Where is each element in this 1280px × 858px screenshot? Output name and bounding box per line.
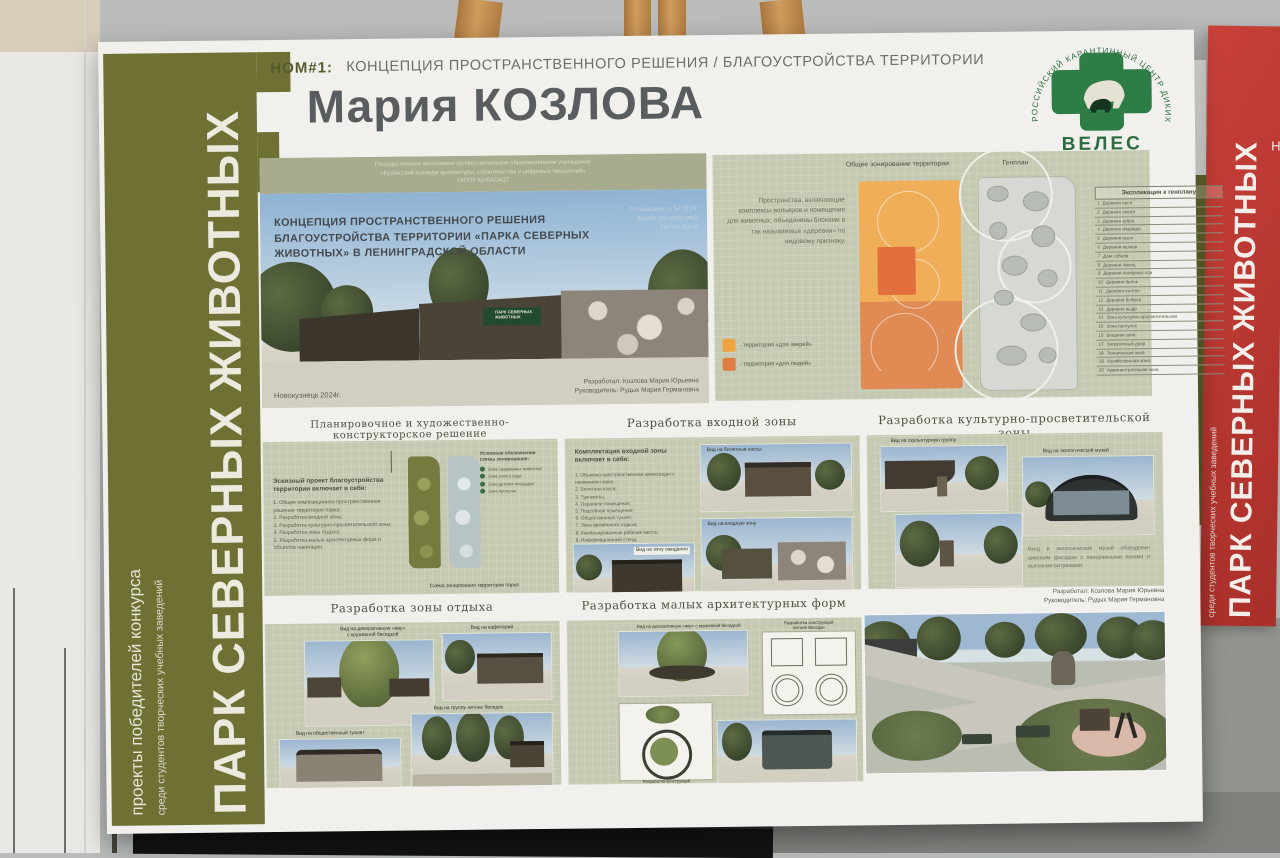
row-number: 8 bbox=[1098, 261, 1101, 269]
row-number: 16 bbox=[1098, 332, 1103, 340]
scheme-legend-row: Зона тихого сада bbox=[480, 473, 552, 479]
explication-rows: 1 Деревня лося 2 Деревня оленя 3 Деревня… bbox=[1095, 198, 1225, 375]
legend-row: - территория «для людей» bbox=[723, 356, 853, 370]
row-label: Дом соболя bbox=[1103, 252, 1128, 260]
row-number: 5 bbox=[1097, 235, 1100, 243]
render-sculpture-2 bbox=[895, 514, 1022, 587]
zoning-description: Пространства, включающие комплексы волье… bbox=[727, 196, 846, 248]
legend-swatch bbox=[723, 358, 736, 371]
planning-list-item: 1. Общее композиционно-пространственное … bbox=[273, 499, 395, 515]
college-name: Государственное автономное профессиональ… bbox=[259, 157, 706, 188]
nomination-category: КОНЦЕПЦИЯ ПРОСТРАНСТВЕННОГО РЕШЕНИЯ / БЛ… bbox=[346, 52, 984, 75]
red-poster-header-fragment: Н bbox=[1271, 138, 1280, 153]
wall-seam bbox=[84, 0, 86, 853]
veles-logo: РОССИЙСКИЙ КАРАНТИННЫЙ ЦЕНТР ДИКИХ ЖИВОТ… bbox=[1023, 32, 1179, 156]
planning-list: 1. Общее композиционно-пространственное … bbox=[273, 499, 396, 553]
leisure-panel: Разработка зоны отдыха Вид на декоративн… bbox=[264, 595, 561, 788]
zoning-scheme-map-grey bbox=[448, 456, 481, 568]
zoning-legend: - территория «для зверей» - территория «… bbox=[722, 331, 852, 370]
row-number: 19 bbox=[1099, 358, 1104, 366]
scheme-legend-row: Зона детских площадок bbox=[480, 481, 552, 487]
scheme-legend: Условные обозначения схемы зонирования: … bbox=[480, 451, 552, 494]
explication-table: Экспликация к генплану 1 Деревня лося 2 … bbox=[1095, 185, 1225, 384]
specialty-text: Специальность 54.02.01 Дизайн (по отрасл… bbox=[629, 205, 698, 233]
render-gazebos bbox=[412, 713, 553, 788]
row-number: 15 bbox=[1098, 323, 1103, 331]
caption-waiting: Вид на зону ожидания bbox=[634, 546, 690, 554]
legend-dot-icon bbox=[480, 474, 485, 479]
render-entry-zone: Вид на входную зону bbox=[701, 517, 852, 592]
supervisor: Руководитель: Рудых Мария Германовна bbox=[575, 385, 699, 396]
hero-render: ПАРК СЕВЕРНЫХ ЖИВОТНЫХ КОНЦЕПЦИЯ ПРОСТРА… bbox=[260, 189, 709, 408]
entrance-list-item: 1. Объемно-пространственная композиция с… bbox=[575, 471, 693, 487]
sidebar-title: ПАРК СЕВЕРНЫХ ЖИВОТНЫХ bbox=[196, 64, 257, 815]
row-number: 6 bbox=[1097, 244, 1100, 252]
sidebar-medium-text: проекты победителей конкурса bbox=[120, 156, 147, 816]
leisure-title: Разработка зоны отдыха bbox=[264, 599, 559, 616]
zoning-scheme-map-olive bbox=[408, 456, 441, 568]
scheme-legend-label: Зона тихого сада bbox=[488, 474, 521, 479]
credits-supervisor: Руководитель: Рудых Мария Германовна bbox=[984, 595, 1164, 606]
leisure-body: Вид на декоративную «иву» с кружевной бе… bbox=[265, 621, 562, 788]
caption-willow-constr: Разработка конструкций «ивы» с кружевной… bbox=[612, 779, 720, 785]
caption-gazebos: Вид на группу летних беседок bbox=[434, 705, 504, 712]
scheme-legend-label: Зона «деревень» животных bbox=[488, 466, 542, 472]
hero-credits: Разработал: Козлова Мария Юрьевна Руково… bbox=[575, 376, 700, 397]
scheme-legend-row: Зона прогулок bbox=[480, 488, 552, 494]
row-label: Деревня зубра bbox=[1103, 217, 1135, 225]
entrance-panel: Разработка входной зоны Комплектация вхо… bbox=[564, 409, 861, 592]
row-label: Загрузочный двор bbox=[1107, 340, 1146, 348]
row-number: 7 bbox=[1097, 252, 1100, 260]
row-label: Деревня рыси bbox=[1103, 234, 1133, 242]
row-number: 20 bbox=[1099, 367, 1104, 375]
scheme-legend-title: Условные обозначения схемы зонирования: bbox=[480, 451, 552, 464]
row-label: Зона прогулок bbox=[1106, 322, 1137, 330]
legend-row: - территория «для зверей» bbox=[722, 337, 852, 351]
row-label: Деревня белок bbox=[1106, 278, 1138, 286]
caption-willow: Вид на декоративную «иву» с кружевной бе… bbox=[313, 626, 433, 639]
row-number: 1 bbox=[1097, 200, 1100, 208]
zoning-map-accent bbox=[877, 247, 916, 295]
explication-row: 20 Административная зона bbox=[1097, 365, 1225, 375]
render-willow bbox=[305, 640, 434, 725]
row-label: Деревня оленя bbox=[1103, 208, 1135, 216]
caption-sculpture: Вид на скульптурную группу bbox=[891, 438, 957, 444]
scheme-legend-items: Зона «деревень» животных Зона тихого сад… bbox=[480, 466, 552, 494]
compass-needle bbox=[391, 451, 392, 473]
row-label: Техническая зона bbox=[1107, 349, 1145, 357]
drawings-gazebo bbox=[763, 631, 856, 714]
genplan-map bbox=[979, 177, 1077, 390]
blind-cord bbox=[13, 588, 15, 853]
park-entrance-sign: ПАРК СЕВЕРНЫХ ЖИВОТНЫХ bbox=[483, 307, 541, 326]
museum-paragraph: Вход в экологический музей оборудован ши… bbox=[1028, 544, 1150, 571]
sidebar-small-text: среди студентов творческих учебных завед… bbox=[149, 255, 167, 815]
scheme-legend-row: Зона «деревень» животных bbox=[480, 466, 552, 472]
planning-panel: Планировочное и художественно-конструкто… bbox=[262, 413, 559, 596]
row-label: Входная зона bbox=[1106, 331, 1135, 339]
blind-cord bbox=[64, 648, 66, 853]
caption-entry: Вид на входную зону bbox=[707, 522, 756, 528]
arch-sculpture bbox=[1051, 651, 1075, 685]
caption-wc: Вид на общественный туалет bbox=[296, 731, 365, 738]
entrance-lead: Комплектация входной зоны включает в себ… bbox=[575, 447, 690, 464]
maf-panel: Разработка малых архитектурных форм Вид … bbox=[566, 591, 863, 784]
red-poster-title: ПАРК СЕВЕРНЫХ ЖИВОТНЫХ bbox=[1224, 58, 1266, 618]
row-number: 17 bbox=[1098, 340, 1103, 348]
caption-ticket: Вид на билетные кассы bbox=[707, 447, 762, 453]
row-number: 14 bbox=[1098, 314, 1103, 322]
culture-body: Вид на скульптурную группу Вид на эколог… bbox=[867, 432, 1165, 589]
veles-logo-icon: РОССИЙСКИЙ КАРАНТИННЫЙ ЦЕНТР ДИКИХ ЖИВОТ… bbox=[1023, 32, 1179, 156]
render-cafe bbox=[443, 633, 552, 700]
legend-dot-icon bbox=[480, 489, 485, 494]
row-number: 13 bbox=[1098, 305, 1103, 313]
legend-dot-icon bbox=[480, 482, 485, 487]
row-number: 18 bbox=[1099, 349, 1104, 357]
row-number: 11 bbox=[1098, 288, 1103, 296]
render-wc bbox=[280, 739, 401, 789]
legend-label: - территория «для людей» bbox=[740, 360, 812, 367]
row-label: Зона культурно-просветительная bbox=[1106, 313, 1177, 322]
zoning-map bbox=[859, 180, 963, 389]
row-number: 10 bbox=[1098, 279, 1103, 287]
city-year: Новокузнецк 2024г. bbox=[274, 390, 341, 400]
legend-dot-icon bbox=[480, 467, 485, 472]
row-label: Деревня выдр bbox=[1106, 305, 1137, 313]
render-eco-museum bbox=[1023, 456, 1154, 535]
caption-cafe: Вид на кафетерий bbox=[471, 625, 514, 631]
render-waiting-area: Вид на зону ожидания bbox=[574, 543, 695, 592]
maf-title: Разработка малых архитектурных форм bbox=[566, 595, 861, 612]
credits-block: Разработал: Козлова Мария Юрьевна Руково… bbox=[984, 586, 1164, 607]
row-number: 12 bbox=[1098, 296, 1103, 304]
scheme-caption: Схема зонирования территории парка bbox=[414, 583, 534, 590]
poster-sidebar: проекты победителей конкурса среди студе… bbox=[103, 52, 265, 826]
row-label: Деревня медведя bbox=[1103, 226, 1141, 234]
competition-poster: проекты победителей конкурса среди студе… bbox=[98, 30, 1203, 834]
stone-wall bbox=[561, 289, 709, 359]
row-label: Деревня волков bbox=[1103, 243, 1137, 251]
legend-swatch bbox=[722, 339, 735, 352]
row-label: Деревня полярных сов bbox=[1103, 269, 1152, 277]
entrance-body: Комплектация входной зоны включает в себ… bbox=[565, 435, 862, 592]
project-title: КОНЦЕПЦИЯ ПРОСТРАНСТВЕННОГО РЕШЕНИЯ БЛАГ… bbox=[274, 212, 590, 262]
park-overview-render bbox=[865, 612, 1167, 773]
author-name: Мария КОЗЛОВА bbox=[306, 75, 704, 134]
legend-label: - территория «для зверей» bbox=[739, 341, 812, 348]
drawings-willow bbox=[620, 703, 713, 780]
maf-body: Вид на декоративную «иву» с кружевной бе… bbox=[567, 617, 864, 784]
row-number: 3 bbox=[1097, 217, 1100, 225]
row-label: Хозяйственная зона bbox=[1107, 357, 1150, 365]
row-label: Административная зона bbox=[1107, 366, 1159, 374]
render-gazebo-view bbox=[718, 719, 857, 784]
row-number: 4 bbox=[1097, 226, 1100, 234]
zoning-heading: Общее зонирование территории bbox=[832, 160, 962, 170]
caption-museum: Вид на экологический музей bbox=[1043, 449, 1109, 455]
nomination-label: НОМ#1: bbox=[270, 59, 333, 77]
row-label: Деревня бобров bbox=[1106, 296, 1141, 304]
caption-gazebo-constr: Разработка конструкций летней беседки bbox=[763, 619, 855, 630]
scheme-legend-label: Зона детских площадок bbox=[488, 481, 534, 487]
scheme-legend-label: Зона прогулок bbox=[488, 489, 516, 494]
entrance-list: 1. Объемно-пространственная композиция с… bbox=[575, 471, 694, 544]
culture-panel: Разработка культурно-просветительской зо… bbox=[866, 406, 1164, 589]
hero-panel: Государственное автономное профессиональ… bbox=[259, 153, 709, 408]
render-ticket-office: Вид на билетные кассы bbox=[701, 443, 852, 511]
planning-body: Эскизный проект благоустройства территор… bbox=[263, 439, 560, 596]
entrance-title: Разработка входной зоны bbox=[564, 413, 859, 430]
row-label: Деревня енотов bbox=[1106, 287, 1140, 295]
row-number: 2 bbox=[1097, 208, 1100, 216]
zoning-panel: Общее зонирование территории Генплан Про… bbox=[712, 150, 1152, 401]
row-number: 9 bbox=[1098, 270, 1101, 278]
row-label: Деревня лося bbox=[1102, 199, 1132, 207]
caption-willow-view: Вид на декоративную «иву» с кружевной бе… bbox=[619, 623, 759, 630]
render-sculpture-1 bbox=[881, 446, 1008, 511]
row-label: Деревня лисиц bbox=[1103, 261, 1135, 269]
planning-list-item: 5. Разработка малых архитектурных форм и… bbox=[274, 536, 396, 552]
planning-lead: Эскизный проект благоустройства территор… bbox=[273, 477, 391, 494]
render-willow-view bbox=[619, 631, 748, 696]
